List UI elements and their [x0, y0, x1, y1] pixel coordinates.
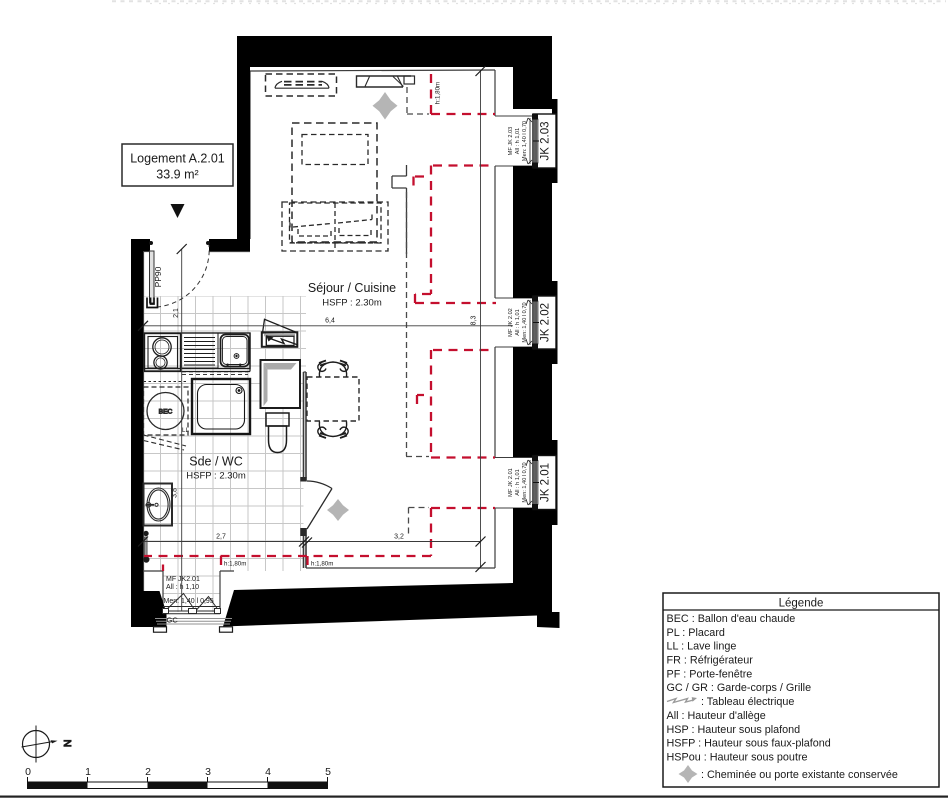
svg-text:LL : Lave linge: LL : Lave linge	[667, 641, 737, 653]
svg-text:Logement A.2.01: Logement A.2.01	[130, 152, 225, 166]
svg-text:BEC: BEC	[159, 409, 173, 416]
svg-text:BEC : Ballon d'eau chaude: BEC : Ballon d'eau chaude	[667, 613, 796, 625]
svg-text:PL : Placard: PL : Placard	[667, 627, 725, 639]
svg-text:FR : Réfrigérateur: FR : Réfrigérateur	[667, 655, 754, 667]
svg-text:GC: GC	[167, 616, 179, 625]
svg-text:8,3: 8,3	[471, 316, 478, 326]
svg-text:MF JK2.01: MF JK2.01	[166, 576, 200, 583]
svg-text:JK 2.03: JK 2.03	[540, 122, 552, 161]
svg-text:3,8: 3,8	[172, 488, 179, 498]
svg-text:All : Hauteur d'allège: All : Hauteur d'allège	[667, 710, 766, 722]
svg-text:HSPou : Hauteur sous poutre: HSPou : Hauteur sous poutre	[667, 752, 808, 764]
svg-text:6,4: 6,4	[325, 318, 335, 325]
svg-text:JK 2.02: JK 2.02	[540, 303, 552, 342]
svg-text:HSFP : Hauteur sous faux-plafo: HSFP : Hauteur sous faux-plafond	[667, 738, 831, 750]
svg-text:2,1: 2,1	[173, 308, 180, 318]
svg-text:Séjour / Cuisine: Séjour / Cuisine	[308, 281, 396, 295]
svg-text:Men: 1,40 l 0,70: Men: 1,40 l 0,70	[522, 462, 528, 502]
svg-text:MF JK 2.03: MF JK 2.03	[508, 127, 514, 156]
svg-text:MF JK 2.01: MF JK 2.01	[508, 468, 514, 497]
svg-text:5: 5	[325, 766, 331, 778]
svg-text:LL: LL	[182, 427, 189, 434]
svg-text:33.9 m²: 33.9 m²	[156, 168, 198, 182]
svg-text:Légende: Légende	[779, 598, 824, 610]
svg-text:2,7: 2,7	[216, 534, 226, 541]
svg-text:: Tableau électrique: : Tableau électrique	[701, 696, 794, 708]
svg-text:All : h 1,10: All : h 1,10	[166, 584, 199, 591]
svg-text:PF : Porte-fenêtre: PF : Porte-fenêtre	[667, 668, 753, 680]
svg-text:GC / GR : Garde-corps / Grille: GC / GR : Garde-corps / Grille	[667, 682, 812, 694]
svg-text:N: N	[61, 740, 73, 748]
svg-text:0: 0	[25, 766, 31, 778]
svg-text:HSFP : 2.30m: HSFP : 2.30m	[322, 298, 382, 309]
svg-text:h:1,80m: h:1,80m	[224, 561, 246, 568]
svg-text:1: 1	[85, 766, 91, 778]
svg-text:: Cheminée ou porte existante: : Cheminée ou porte existante conservée	[701, 769, 898, 781]
svg-text:PP90: PP90	[153, 266, 163, 287]
svg-text:h:1,80m: h:1,80m	[311, 561, 333, 568]
svg-text:h:1,80m: h:1,80m	[435, 82, 442, 104]
svg-text:2: 2	[145, 766, 151, 778]
svg-text:3,2: 3,2	[394, 534, 404, 541]
svg-text:All : h 1,01: All : h 1,01	[515, 309, 521, 335]
svg-text:HSP : Hauteur sous plafond: HSP : Hauteur sous plafond	[667, 724, 801, 736]
svg-text:3: 3	[205, 766, 211, 778]
svg-text:4: 4	[265, 766, 271, 778]
svg-text:Men: 1,40 l 0,70: Men: 1,40 l 0,70	[522, 302, 528, 342]
svg-text:Sde / WC: Sde / WC	[189, 455, 243, 469]
svg-text:All : h 1,01: All : h 1,01	[515, 469, 521, 495]
svg-text:Men: 1,40 l 0,70: Men: 1,40 l 0,70	[522, 121, 528, 161]
svg-text:HSFP : 2.30m: HSFP : 2.30m	[186, 471, 246, 482]
svg-text:All : h 1,01: All : h 1,01	[515, 128, 521, 154]
svg-text:Men: 1,40 l 0,95: Men: 1,40 l 0,95	[164, 598, 214, 605]
svg-text:MF JK 2.02: MF JK 2.02	[508, 308, 514, 337]
svg-text:JK 2.01: JK 2.01	[540, 463, 552, 502]
